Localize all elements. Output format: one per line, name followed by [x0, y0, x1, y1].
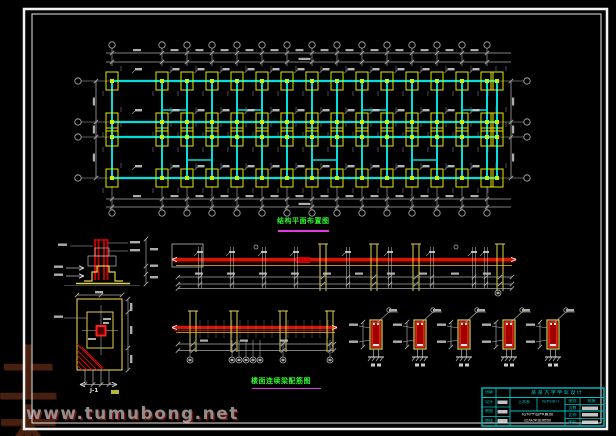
plan-view-title: 结构平面布置图	[277, 216, 330, 226]
titleblock-dept: 土木系	[512, 400, 537, 404]
titleblock-project: 某某大学毕业设计	[511, 390, 603, 396]
beam-diagram-title: 楼面连续梁配筋图	[251, 376, 311, 386]
titleblock-right-label-3: 比例	[566, 413, 580, 417]
titleblock-right-label-4: 图号	[566, 420, 580, 424]
titleblock-right-value-1: 结施	[581, 399, 603, 403]
footing-label: J-1	[90, 388, 98, 394]
titleblock-drawing-name-2: 连续梁配筋图	[511, 419, 564, 424]
beam-title-underline	[252, 388, 321, 390]
titleblock-right-label-1: 图别	[566, 399, 580, 403]
cad-canvas: 土木帮 www.tumubong.net 结构平面布置图 楼面连续梁配筋图 J-…	[0, 0, 616, 436]
titleblock-row-label-1: 班级	[483, 390, 496, 394]
titleblock-major: 结构设计	[539, 400, 564, 405]
titleblock-row-label-2: 设计	[483, 400, 496, 404]
titleblock-row-label-3: 制图	[483, 409, 496, 413]
titleblock-right-label-2: 页数	[566, 406, 580, 410]
titleblock-drawing-name-1: 结构平面布置图	[511, 413, 564, 418]
titleblock-row-label-4: 审核	[483, 419, 496, 423]
plan-title-underline	[278, 230, 329, 232]
